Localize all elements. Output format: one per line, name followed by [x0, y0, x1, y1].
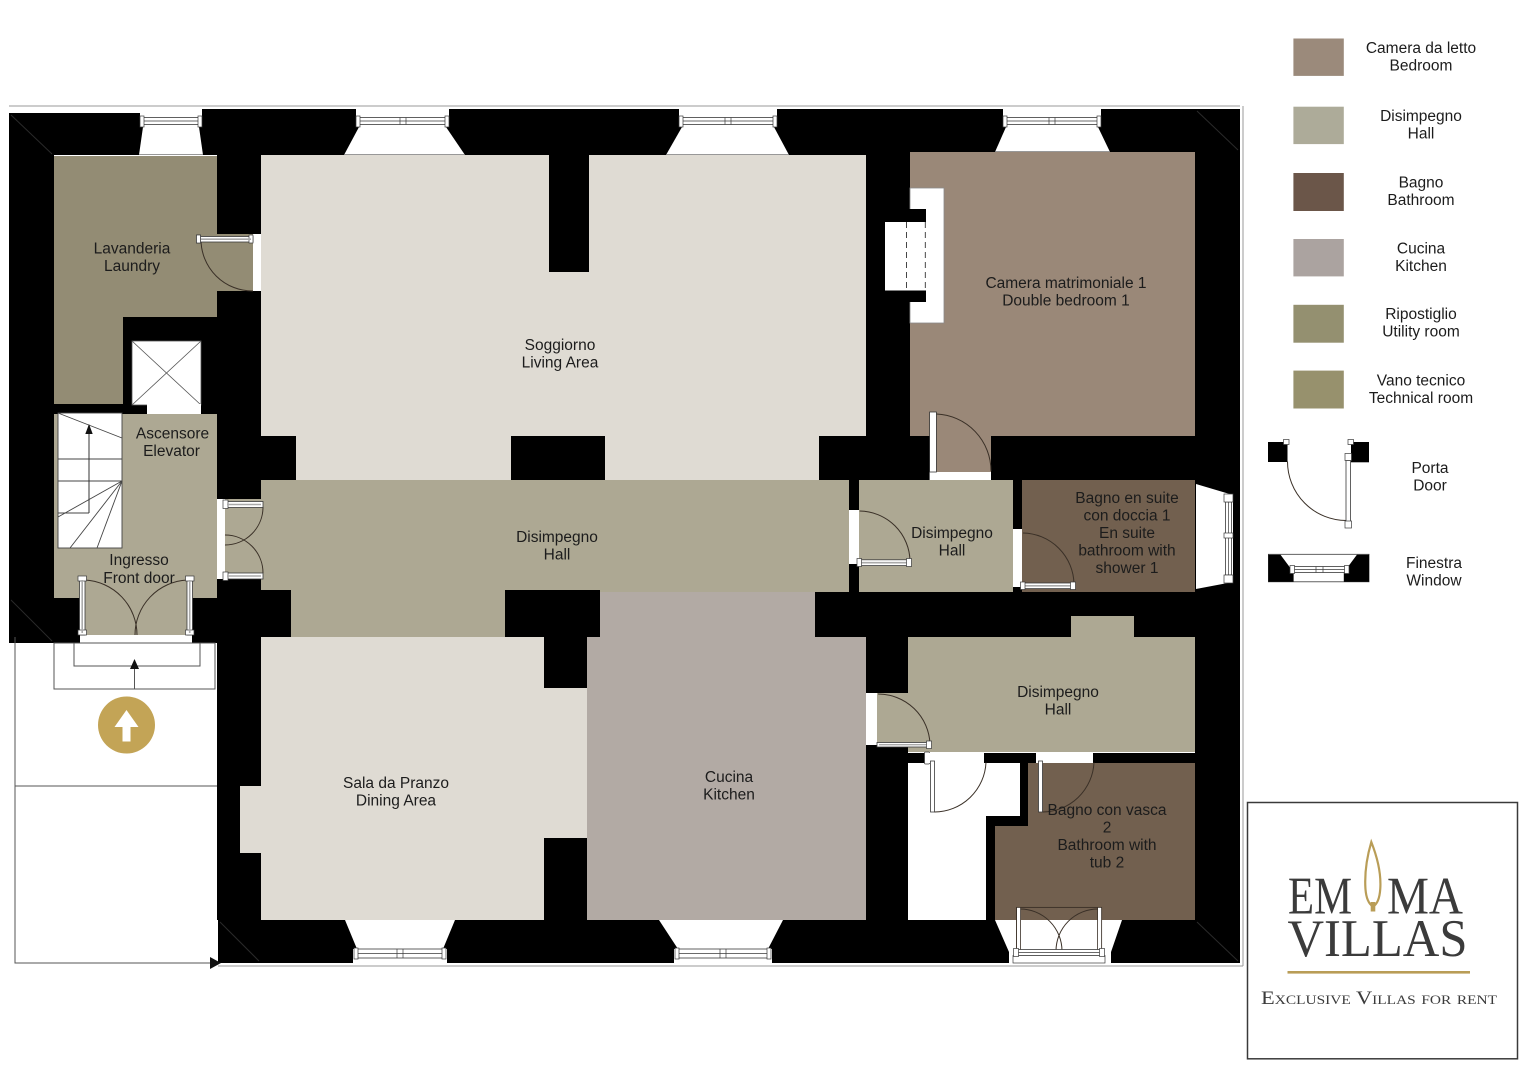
svg-text:Porta: Porta: [1411, 460, 1448, 477]
svg-text:Disimpegno: Disimpegno: [1380, 108, 1462, 125]
svg-text:Hall: Hall: [544, 547, 571, 564]
svg-text:Double bedroom 1: Double bedroom 1: [1002, 293, 1130, 310]
svg-text:Disimpegno: Disimpegno: [516, 529, 598, 546]
svg-text:Hall: Hall: [939, 543, 966, 560]
svg-text:Technical room: Technical room: [1369, 390, 1473, 407]
svg-text:Ascensore: Ascensore: [136, 426, 209, 443]
svg-text:Kitchen: Kitchen: [703, 787, 755, 804]
svg-text:Bathroom: Bathroom: [1387, 192, 1454, 209]
svg-text:con doccia 1: con doccia 1: [1083, 508, 1170, 525]
svg-text:Bagno: Bagno: [1399, 175, 1444, 192]
svg-text:En suite: En suite: [1099, 525, 1155, 542]
svg-text:Bathroom with: Bathroom with: [1057, 837, 1156, 854]
svg-text:Disimpegno: Disimpegno: [911, 525, 993, 542]
svg-text:Lavanderia: Lavanderia: [94, 241, 171, 258]
svg-text:Vano tecnico: Vano tecnico: [1377, 373, 1465, 390]
svg-text:Living Area: Living Area: [522, 355, 599, 372]
svg-text:Camera da letto: Camera da letto: [1366, 40, 1476, 57]
svg-text:Elevator: Elevator: [143, 443, 200, 460]
svg-text:Bagno en suite: Bagno en suite: [1075, 490, 1178, 507]
svg-text:Hall: Hall: [1408, 126, 1435, 143]
svg-text:Dining Area: Dining Area: [356, 793, 437, 810]
svg-text:Sala da Pranzo: Sala da Pranzo: [343, 775, 449, 792]
svg-text:VILLAS: VILLAS: [1288, 910, 1468, 968]
svg-text:Cucina: Cucina: [705, 769, 754, 786]
svg-text:Kitchen: Kitchen: [1395, 258, 1447, 275]
svg-text:Ripostiglio: Ripostiglio: [1385, 306, 1457, 323]
svg-text:Laundry: Laundry: [104, 258, 160, 275]
svg-text:Cucina: Cucina: [1397, 241, 1446, 258]
svg-text:bathroom with: bathroom with: [1078, 543, 1175, 560]
svg-text:Utility room: Utility room: [1382, 324, 1460, 341]
svg-text:Exclusive Villas for rent: Exclusive Villas for rent: [1261, 988, 1497, 1009]
svg-text:2: 2: [1103, 820, 1112, 837]
svg-text:Front door: Front door: [103, 570, 175, 587]
svg-text:Ingresso: Ingresso: [109, 552, 168, 569]
svg-text:Hall: Hall: [1045, 702, 1072, 719]
svg-text:Disimpegno: Disimpegno: [1017, 684, 1099, 701]
svg-text:Soggiorno: Soggiorno: [525, 337, 596, 354]
svg-text:Window: Window: [1406, 573, 1462, 590]
svg-text:Camera matrimoniale 1: Camera matrimoniale 1: [985, 275, 1146, 292]
svg-text:shower 1: shower 1: [1096, 560, 1159, 577]
svg-text:Bedroom: Bedroom: [1390, 58, 1453, 75]
svg-text:tub 2: tub 2: [1090, 855, 1124, 872]
svg-text:Finestra: Finestra: [1406, 555, 1462, 572]
svg-text:Bagno con vasca: Bagno con vasca: [1048, 802, 1167, 819]
svg-text:Door: Door: [1413, 478, 1447, 495]
